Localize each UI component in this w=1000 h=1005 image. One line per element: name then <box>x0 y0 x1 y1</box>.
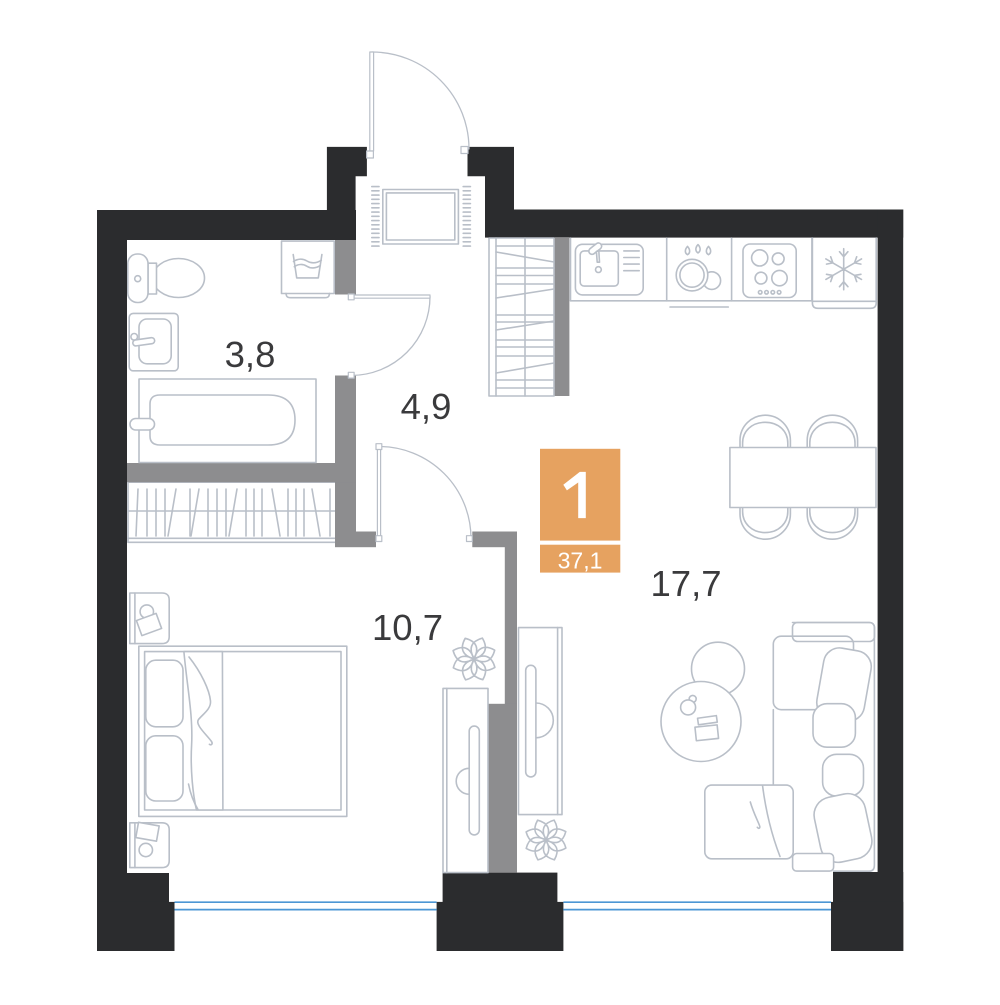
svg-text:37,1: 37,1 <box>558 548 603 574</box>
svg-text:10,7: 10,7 <box>372 607 443 648</box>
svg-text:4,9: 4,9 <box>401 386 452 427</box>
svg-text:3,8: 3,8 <box>225 334 276 375</box>
svg-text:17,7: 17,7 <box>650 563 721 604</box>
